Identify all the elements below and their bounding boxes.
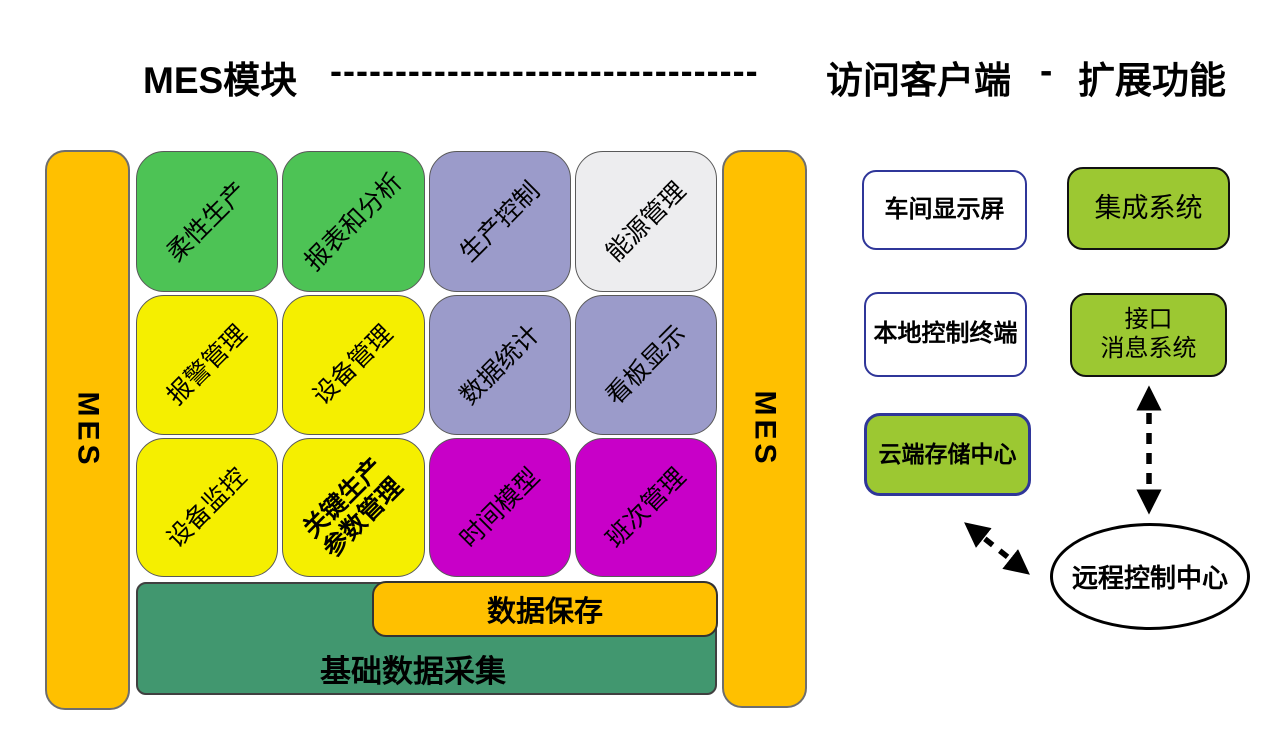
cell-kanban-display: 看板显示 (575, 295, 717, 435)
cell-label: 设备管理 (308, 320, 399, 411)
cell-key-production-parameter-management: 关键生产 参数管理 (282, 438, 424, 577)
workshop-display-label: 车间显示屏 (885, 196, 1005, 225)
mes-modules-title: MES模块 (143, 50, 297, 104)
cell-data-statistics: 数据统计 (429, 295, 571, 435)
cell-label: 设备监控 (162, 462, 253, 553)
cell-label: 柔性生产 (162, 176, 253, 267)
cell-label: 能源管理 (601, 176, 692, 267)
box-integrated-system: 集成系统 (1067, 167, 1230, 250)
cell-label: 报警管理 (162, 320, 253, 411)
cell-production-control: 生产控制 (429, 151, 571, 292)
mes-left-bar: MES (45, 150, 130, 710)
integrated-system-label: 集成系统 (1095, 192, 1203, 224)
base-data-collection-label: 基础数据采集 (320, 646, 506, 691)
cell-label: 数据统计 (454, 320, 545, 411)
cell-label: 报表和分析 (299, 167, 407, 275)
mes-architecture-diagram: MES模块 --------------------------------- … (0, 0, 1271, 730)
cell-flexible-production: 柔性生产 (136, 151, 278, 292)
cell-alarm-management: 报警管理 (136, 295, 278, 435)
mes-right-bar: MES (722, 150, 807, 708)
box-workshop-display-screen: 车间显示屏 (862, 170, 1027, 250)
remote-control-center-label: 远程控制中心 (1072, 558, 1228, 595)
box-cloud-storage-center: 云端存储中心 (864, 413, 1031, 496)
message-system-label: 消息系统 (1101, 335, 1197, 364)
cell-reports-and-analysis: 报表和分析 (282, 151, 424, 292)
cell-shift-management: 班次管理 (575, 438, 717, 577)
extensions-title: 扩展功能 (1078, 50, 1226, 104)
ellipse-remote-control-center: 远程控制中心 (1050, 523, 1250, 630)
diagonal-dashed-arrow (970, 527, 1024, 570)
data-save-block: 数据保存 (372, 581, 718, 637)
local-control-terminal-label: 本地控制终端 (874, 320, 1018, 349)
cell-label: 看板显示 (601, 320, 692, 411)
box-local-control-terminal: 本地控制终端 (864, 292, 1027, 377)
box-interface-message-system: 接口 消息系统 (1070, 293, 1227, 377)
cell-label: 班次管理 (601, 462, 692, 553)
title-separator: - (1040, 50, 1052, 92)
cell-time-model: 时间模型 (429, 438, 571, 577)
mes-left-bar-label: MES (70, 391, 104, 468)
cell-equipment-management: 设备管理 (282, 295, 424, 435)
access-clients-title: 访问客户端 (826, 50, 1011, 104)
cell-equipment-monitoring: 设备监控 (136, 438, 278, 577)
cloud-storage-center-label: 云端存储中心 (879, 441, 1017, 469)
data-save-label: 数据保存 (487, 588, 603, 630)
title-dashed-line: --------------------------------- (330, 50, 814, 92)
mes-right-bar-label: MES (747, 390, 781, 467)
interface-label: 接口 (1101, 306, 1197, 335)
cell-label: 时间模型 (454, 462, 545, 553)
cell-label: 生产控制 (454, 176, 545, 267)
cell-energy-management: 能源管理 (575, 151, 717, 292)
module-grid: 柔性生产 报表和分析 生产控制 能源管理 报警管理 设备管理 数据统计 看板显示… (136, 151, 717, 577)
